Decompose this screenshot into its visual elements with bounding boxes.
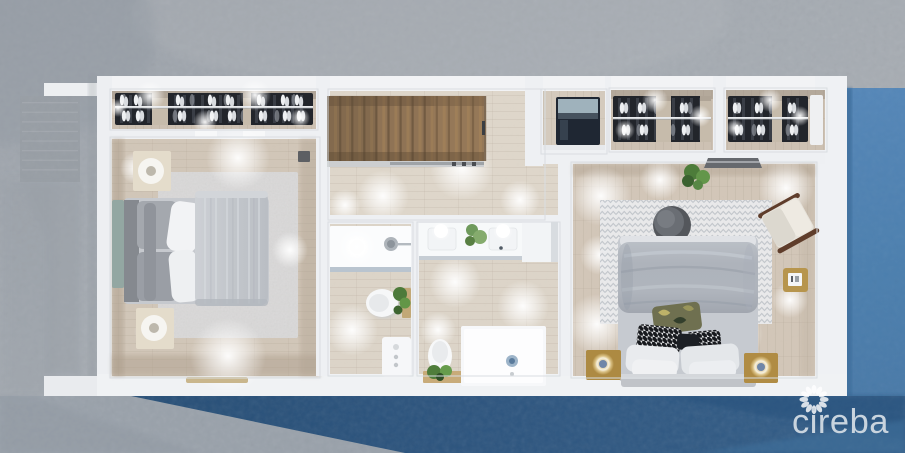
svg-text:cireba: cireba: [792, 403, 889, 441]
